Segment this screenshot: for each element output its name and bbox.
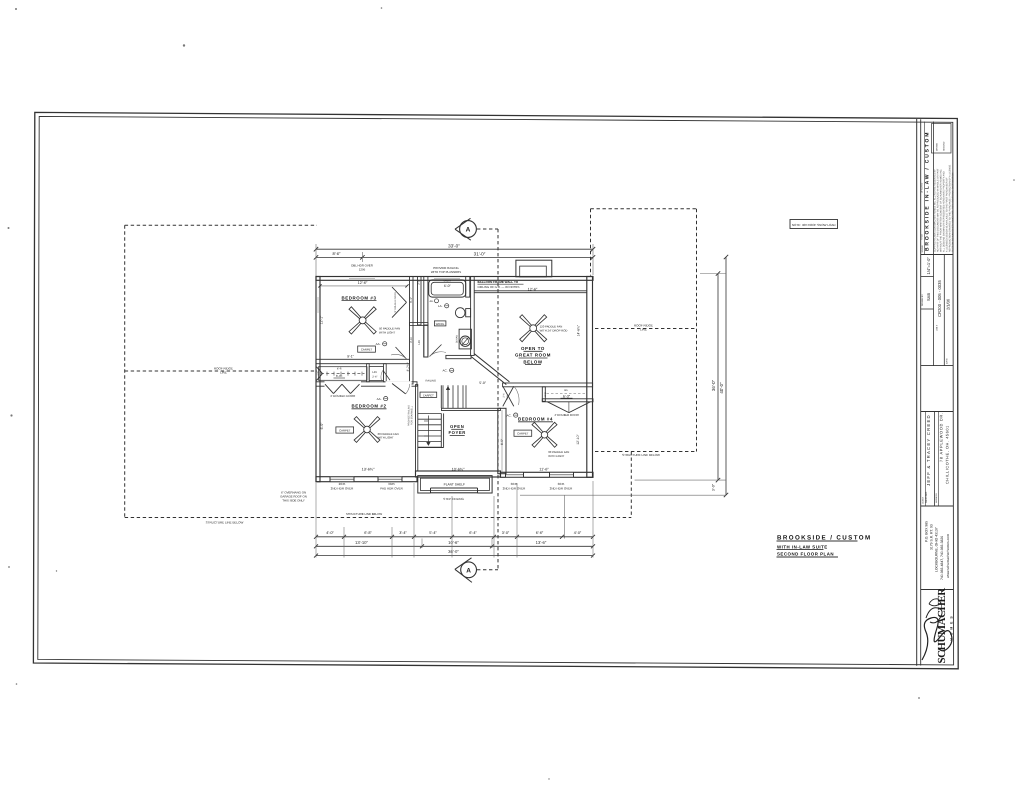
svg-text:SECOND: SECOND bbox=[943, 141, 946, 151]
svg-text:4'-0″: 4'-0″ bbox=[326, 531, 334, 535]
svg-text:3'-4″: 3'-4″ bbox=[399, 531, 407, 535]
svg-text:LIN: LIN bbox=[372, 370, 376, 374]
svg-text:STRUCTURE LINE BELOW: STRUCTURE LINE BELOW bbox=[622, 453, 660, 457]
svg-text:BALLOON FRAME WALL TO: BALLOON FRAME WALL TO bbox=[478, 280, 519, 284]
svg-text:36'-0″: 36'-0″ bbox=[448, 549, 459, 554]
svg-text:12'-6″: 12'-6″ bbox=[358, 281, 368, 285]
svg-text:12'-10″: 12'-10″ bbox=[576, 433, 580, 444]
svg-text:WITH TOP PLANNERS: WITH TOP PLANNERS bbox=[431, 270, 461, 274]
svg-text:3'-7¾″: 3'-7¾″ bbox=[406, 362, 410, 372]
svg-text:OF NOTED: OF NOTED bbox=[921, 182, 924, 193]
svg-text:NOTE: 40# ROOF SNOW LOAD: NOTE: 40# ROOF SNOW LOAD bbox=[792, 223, 837, 227]
svg-text:LINE: LINE bbox=[220, 370, 227, 374]
svg-text:6'-6″: 6'-6″ bbox=[536, 531, 544, 535]
svg-text:STEP CEILING: STEP CEILING bbox=[443, 497, 464, 501]
svg-text:6'-5″: 6'-5″ bbox=[320, 422, 324, 430]
svg-text:SAB: SAB bbox=[926, 293, 931, 301]
svg-text:WITH LIGHT: WITH LIGHT bbox=[548, 454, 564, 458]
svg-text:JEFF & TRACEY CREED: JEFF & TRACEY CREED bbox=[926, 414, 931, 486]
svg-text:AA.: AA. bbox=[377, 397, 382, 401]
svg-text:BEDROOM #3: BEDROOM #3 bbox=[341, 295, 376, 300]
svg-text:2ND HDR OVER: 2ND HDR OVER bbox=[503, 486, 527, 490]
svg-text:1/4"=1'-0": 1/4"=1'-0" bbox=[926, 257, 931, 275]
svg-text:12'-6″: 12'-6″ bbox=[528, 287, 538, 291]
svg-text:5'-4″: 5'-4″ bbox=[429, 531, 437, 535]
svg-text:SECOND FLOOR PLAN: SECOND FLOOR PLAN bbox=[777, 552, 834, 557]
svg-text:8'-6″: 8'-6″ bbox=[333, 251, 342, 256]
svg-text:LA.: LA. bbox=[438, 304, 443, 308]
svg-text:SALES REP.: SALES REP. bbox=[925, 491, 928, 503]
svg-text:1206: 1206 bbox=[359, 267, 366, 271]
svg-text:ADDRESS: ADDRESS bbox=[935, 493, 938, 503]
svg-text:BROOKSIDE IN-LAW / CUSTOM: BROOKSIDE IN-LAW / CUSTOM bbox=[925, 131, 931, 251]
svg-text:9'-1″: 9'-1″ bbox=[347, 354, 355, 358]
svg-text:13'-6¾″: 13'-6¾″ bbox=[362, 468, 375, 472]
svg-text:THIS SIDE ONLY: THIS SIDE ONLY bbox=[282, 499, 305, 503]
svg-text:ALL DESIGNS SHOWN OR REPRESENT: ALL DESIGNS SHOWN OR REPRESENTED HEREIN … bbox=[942, 171, 945, 252]
svg-text:B6: B6 bbox=[564, 389, 568, 392]
svg-text:NO PART OF THIS DOCUMENT MAY B: NO PART OF THIS DOCUMENT MAY BE REPRODUC… bbox=[936, 168, 939, 252]
svg-text:STRUCTURE LINE BELOW: STRUCTURE LINE BELOW bbox=[346, 512, 383, 516]
svg-text:SCALE.: SCALE. bbox=[921, 244, 924, 252]
svg-text:36'-0″: 36'-0″ bbox=[711, 379, 716, 391]
svg-text:78 APPLEWOOD DR.: 78 APPLEWOOD DR. bbox=[939, 412, 943, 462]
svg-text:CARPET: CARPET bbox=[423, 394, 434, 397]
svg-text:2'-4″: 2'-4″ bbox=[372, 375, 377, 378]
svg-text:4'-6: 4'-6 bbox=[337, 367, 342, 371]
svg-text:2/1/06: 2/1/06 bbox=[945, 298, 950, 310]
svg-text:10'-6¾″: 10'-6¾″ bbox=[452, 467, 465, 471]
svg-text:3'-0: 3'-0 bbox=[417, 280, 420, 285]
svg-text:P.O. BOX 985: P.O. BOX 985 bbox=[924, 521, 928, 542]
svg-text:11'-6″: 11'-6″ bbox=[539, 468, 549, 472]
svg-text:CARPET: CARPET bbox=[339, 429, 351, 433]
svg-text:3'-10: 3'-10 bbox=[410, 337, 413, 343]
svg-text:CHILLICOTHE, OH. 45601: CHILLICOTHE, OH. 45601 bbox=[945, 425, 949, 484]
svg-text:CLIENT: CLIENT bbox=[922, 496, 925, 504]
svg-text:33'-0″: 33'-0″ bbox=[448, 243, 460, 248]
svg-text:DRAWN BY.: DRAWN BY. bbox=[921, 294, 924, 306]
svg-text:6'-0×: 6'-0× bbox=[336, 374, 343, 378]
svg-text:COPYRIGHT 2005 SCHUMACHER HOME: COPYRIGHT 2005 SCHUMACHER HOMES INC. ALL… bbox=[933, 169, 936, 252]
svg-text:36 VAN: 36 VAN bbox=[455, 335, 458, 343]
svg-text:740-983-4847, 740-983-3826: 740-983-4847, 740-983-3826 bbox=[940, 536, 944, 580]
svg-text:2ND HDR OVER: 2ND HDR OVER bbox=[331, 486, 355, 490]
svg-text:2'-4: 2'-4 bbox=[503, 393, 506, 398]
svg-text:CEILING OF G.R. — W/ NOTES: CEILING OF G.R. — W/ NOTES bbox=[478, 285, 520, 289]
svg-text:6'-4″: 6'-4″ bbox=[469, 531, 477, 535]
svg-text:2'-0: 2'-0 bbox=[544, 392, 547, 397]
svg-text:6'-8″: 6'-8″ bbox=[364, 531, 372, 535]
svg-text:BELOW: BELOW bbox=[523, 359, 543, 364]
svg-text:9' DOUBLE DOOR: 9' DOUBLE DOOR bbox=[394, 292, 397, 312]
svg-text:VANITY: VANITY bbox=[443, 280, 451, 283]
svg-text:WITH IN-LAW SUITE: WITH IN-LAW SUITE bbox=[777, 544, 828, 549]
svg-text:AC.: AC. bbox=[506, 413, 511, 417]
svg-text:WITHOUT THE PRIOR WRITTEN CONS: WITHOUT THE PRIOR WRITTEN CONSENT OF SCH… bbox=[939, 169, 942, 252]
svg-text:3'-0″: 3'-0″ bbox=[712, 483, 716, 491]
svg-text:A LICENSED DESIGN IS AVAILABLE: A LICENSED DESIGN IS AVAILABLE TO THE FI… bbox=[945, 177, 948, 252]
svg-text:40'-0″: 40'-0″ bbox=[719, 382, 724, 394]
svg-text:12'-1″: 12'-1″ bbox=[320, 315, 324, 324]
svg-text:4' DOUBLE DOOR: 4' DOUBLE DOOR bbox=[330, 394, 356, 398]
svg-text:2ND HDR OVER: 2ND HDR OVER bbox=[550, 486, 574, 490]
svg-text:13'-10″: 13'-10″ bbox=[355, 540, 369, 545]
svg-text:PLANT SHELF: PLANT SHELF bbox=[444, 483, 465, 487]
svg-text:FOYER: FOYER bbox=[448, 430, 465, 435]
svg-text:GREAT ROOM: GREAT ROOM bbox=[515, 353, 551, 358]
svg-text:WHIRL: WHIRL bbox=[436, 323, 445, 326]
svg-text:OPEN TO: OPEN TO bbox=[521, 346, 545, 351]
svg-text:JOB #: JOB # bbox=[935, 324, 938, 331]
svg-text:3179 S.R. RT. 93: 3179 S.R. RT. 93 bbox=[929, 524, 933, 550]
svg-text:CR200 - 005 - 0035: CR200 - 005 - 0035 bbox=[937, 280, 942, 317]
svg-text:RAILING: RAILING bbox=[426, 380, 436, 383]
svg-text:AC.: AC. bbox=[442, 369, 447, 373]
svg-text:A: A bbox=[466, 227, 471, 234]
svg-text:4A.: 4A. bbox=[430, 300, 434, 303]
svg-text:STRUCTURE LINE BELOW: STRUCTURE LINE BELOW bbox=[206, 521, 244, 525]
svg-text:BEDROOM #4: BEDROOM #4 bbox=[518, 417, 553, 422]
svg-text:FILES BY SCHUMACHER HOMES INTL: FILES BY SCHUMACHER HOMES INTL FOR ADDIT… bbox=[951, 172, 954, 252]
svg-text:www.schumacherhomes.com: www.schumacherhomes.com bbox=[946, 534, 950, 578]
svg-text:TITLE: TITLE bbox=[921, 234, 924, 240]
svg-text:BROOKSIDE / CUSTOM: BROOKSIDE / CUSTOM bbox=[777, 534, 872, 541]
svg-text:4' DOUBLE DOOR: 4' DOUBLE DOOR bbox=[554, 413, 578, 417]
svg-text:6'-5″: 6'-5″ bbox=[500, 438, 504, 445]
svg-text:WITH 24" DROP ROD: WITH 24" DROP ROD bbox=[540, 328, 568, 332]
svg-text:FOR STAIRWELL: FOR STAIRWELL bbox=[410, 405, 413, 425]
svg-text:1'-4: 1'-4 bbox=[317, 371, 320, 376]
svg-text:6'-1″: 6'-1″ bbox=[409, 297, 413, 303]
svg-text:OPEN: OPEN bbox=[450, 424, 464, 429]
svg-text:PAD HDR OVER: PAD HDR OVER bbox=[380, 486, 403, 490]
svg-text:5'-0″: 5'-0″ bbox=[479, 381, 487, 385]
svg-text:A: A bbox=[466, 567, 471, 574]
svg-text:AA.: AA. bbox=[376, 342, 381, 346]
svg-text:LINE: LINE bbox=[640, 328, 647, 332]
svg-text:13'-6″: 13'-6″ bbox=[536, 540, 547, 545]
svg-text:4'-0″: 4'-0″ bbox=[574, 531, 582, 535]
svg-text:31'-0″: 31'-0″ bbox=[474, 251, 486, 256]
svg-text:CARPET: CARPET bbox=[361, 348, 373, 352]
svg-text:BEDROOM #2: BEDROOM #2 bbox=[351, 404, 386, 409]
svg-text:WITH LIGHT: WITH LIGHT bbox=[378, 436, 394, 440]
svg-text:14'-6¾″: 14'-6¾″ bbox=[576, 324, 580, 336]
svg-text:DRAWN: DRAWN bbox=[936, 142, 939, 151]
svg-text:6'-3″: 6'-3″ bbox=[563, 394, 571, 398]
svg-text:WITH LIGHT: WITH LIGHT bbox=[379, 330, 395, 334]
svg-text:3'-0″: 3'-0″ bbox=[502, 531, 510, 535]
svg-text:DATE: DATE bbox=[946, 358, 949, 364]
svg-text:6'-0″: 6'-0″ bbox=[444, 284, 452, 288]
svg-text:REPRODUCTION GRANTED TO THE PU: REPRODUCTION GRANTED TO THE PURCHASE / P… bbox=[948, 164, 951, 252]
svg-text:LIN: LIN bbox=[417, 340, 421, 344]
svg-text:LOCKBOURNE, OHIO 43137: LOCKBOURNE, OHIO 43137 bbox=[935, 527, 939, 572]
svg-text:CARPET: CARPET bbox=[517, 432, 529, 436]
svg-text:10'-6″: 10'-6″ bbox=[448, 540, 459, 545]
